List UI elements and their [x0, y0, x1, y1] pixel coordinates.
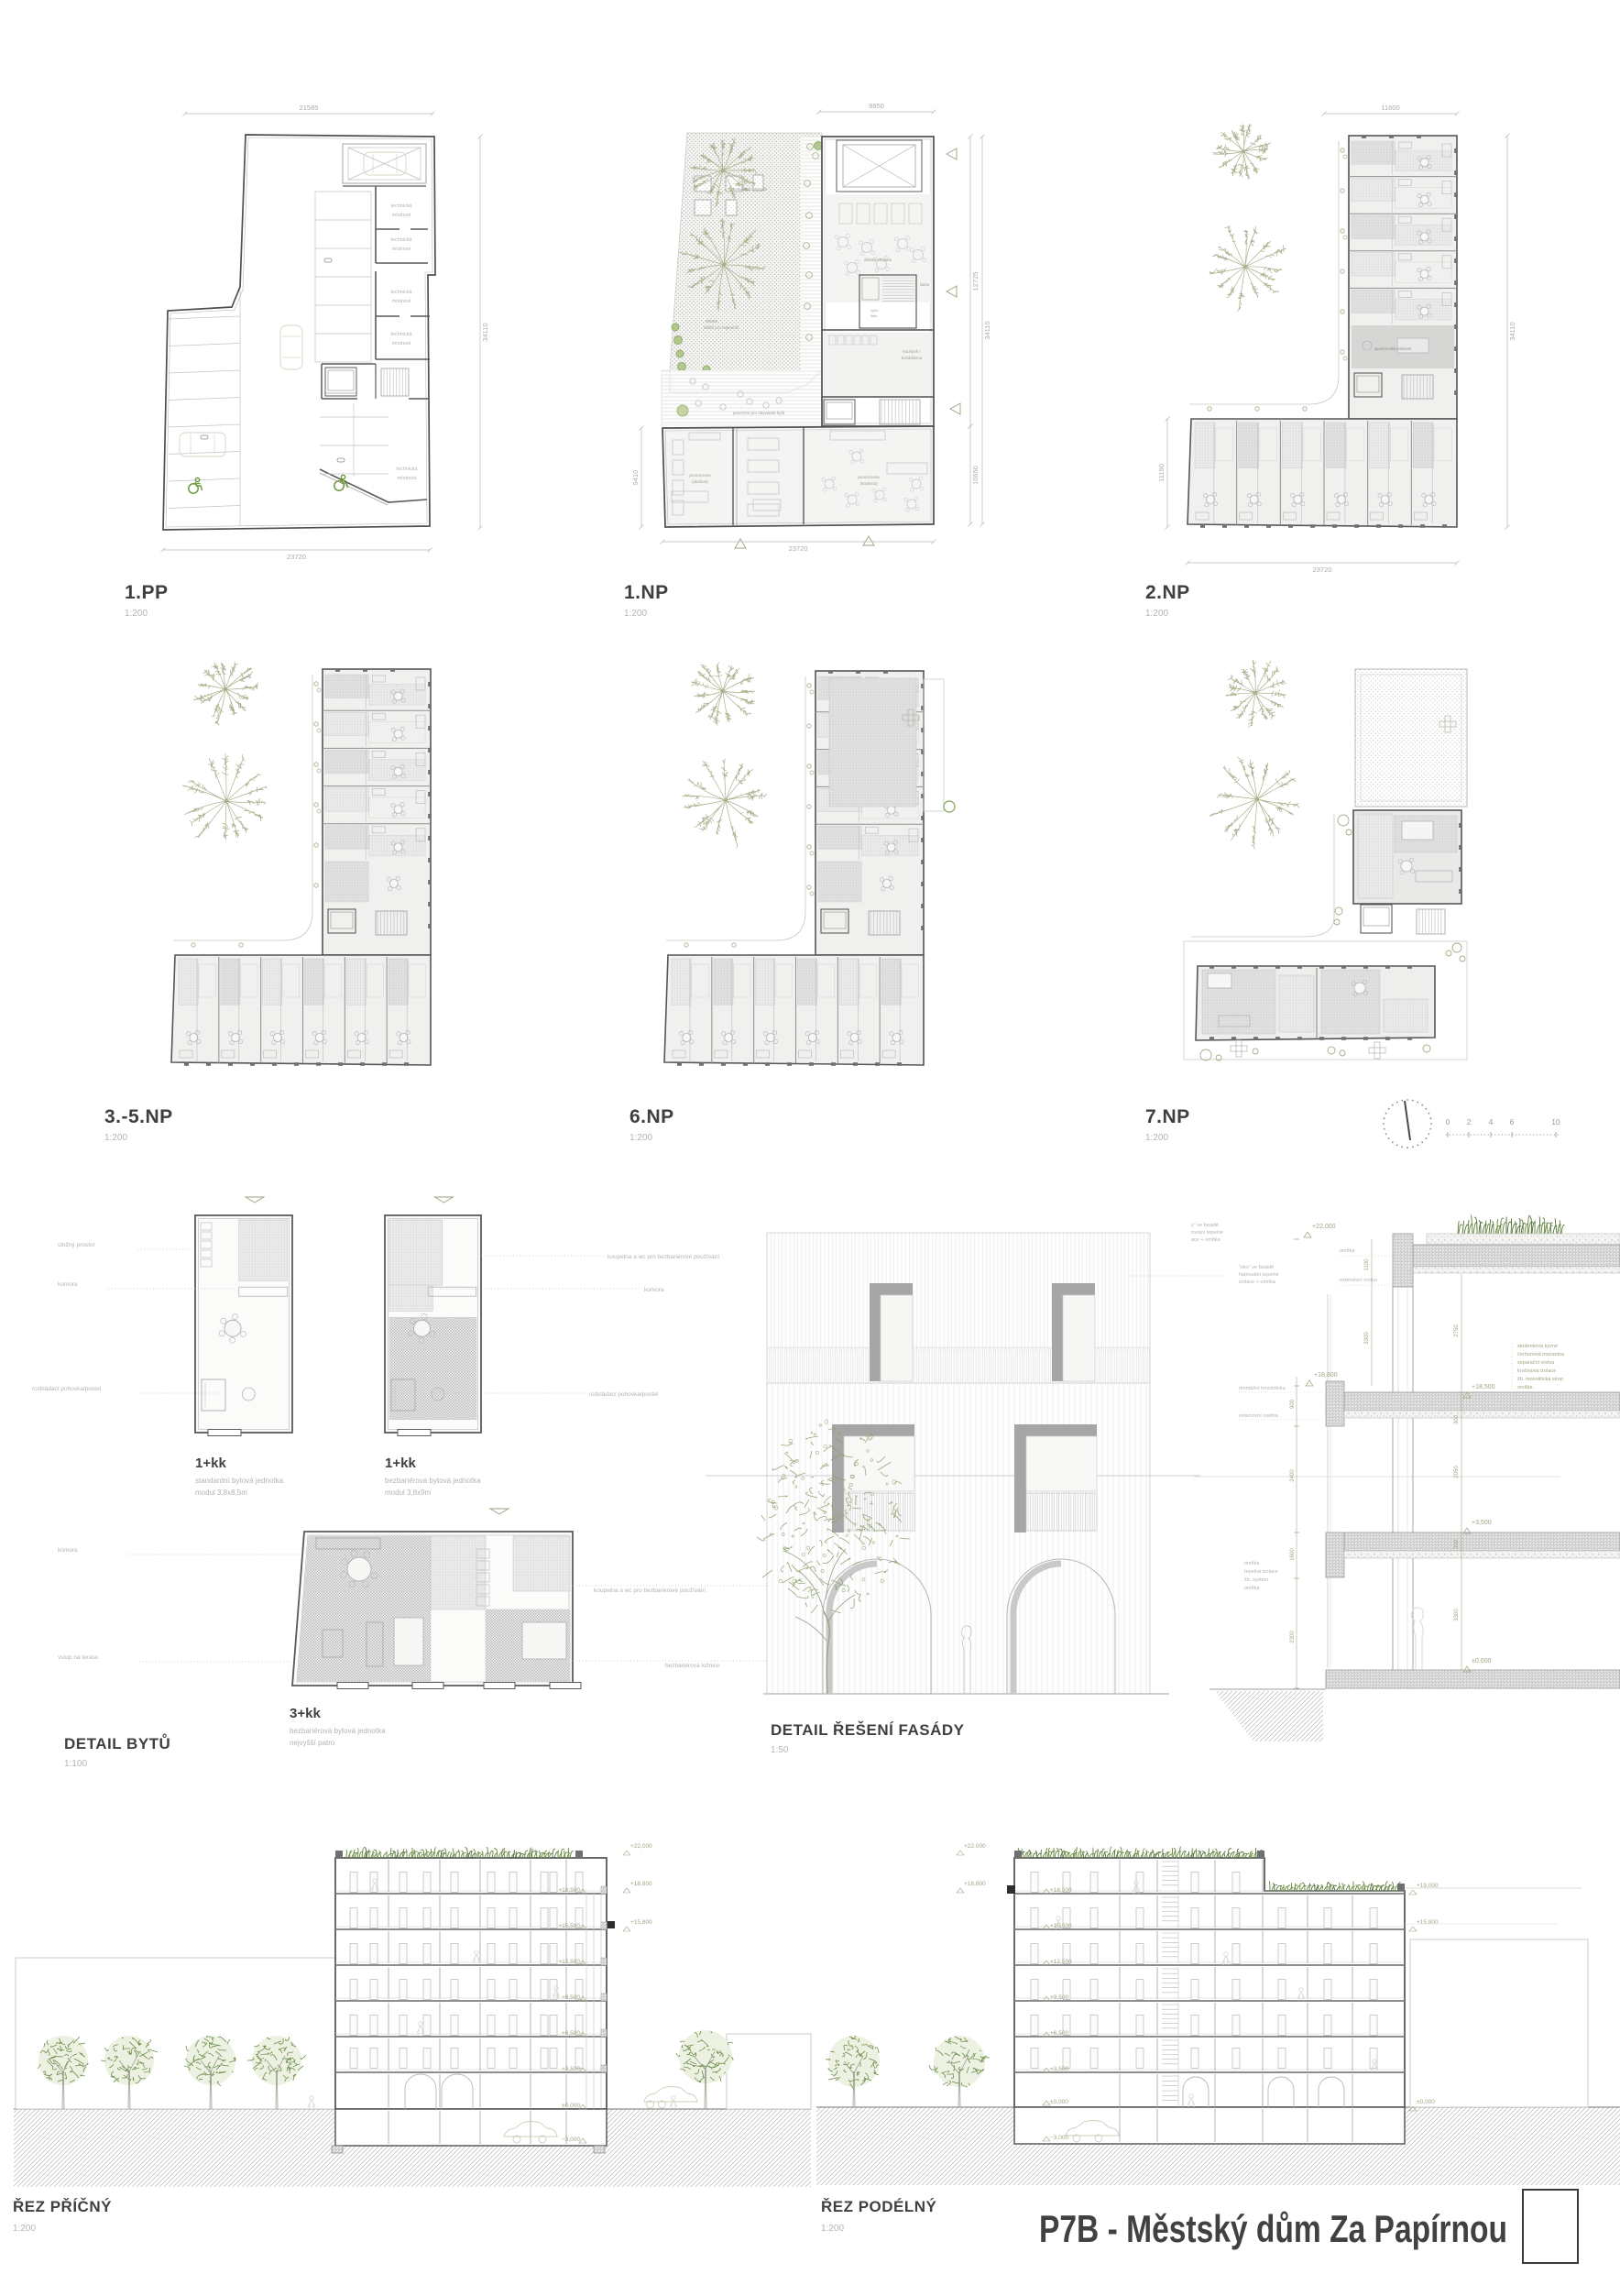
svg-text:+18,800: +18,800 [630, 1881, 652, 1887]
svg-text:23720: 23720 [1313, 566, 1332, 574]
svg-text:34110: 34110 [983, 321, 991, 339]
svg-text:(kavárna): (kavárna) [859, 481, 878, 486]
svg-text:+6,500: +6,500 [562, 2030, 580, 2037]
svg-text:y" ve fasádě: y" ve fasádě [1191, 1223, 1219, 1228]
svg-text:1+kk: 1+kk [195, 1456, 226, 1471]
svg-text:+18,800: +18,800 [1314, 1372, 1338, 1379]
svg-text:bezbariérová ložnice: bezbariérová ložnice [665, 1663, 720, 1669]
svg-text:1:200: 1:200 [125, 609, 148, 619]
svg-text:posezení pro obyvatele bytů: posezení pro obyvatele bytů [733, 410, 785, 415]
svg-text:1100: 1100 [1364, 1258, 1370, 1271]
svg-text:9410: 9410 [631, 470, 640, 486]
svg-text:úložný prostor: úložný prostor [58, 1242, 96, 1248]
svg-text:3300: 3300 [1364, 1332, 1370, 1345]
svg-text:P7B - Městský dům Za Papírnou: P7B - Městský dům Za Papírnou [1039, 2207, 1507, 2250]
svg-text:+15,500: +15,500 [1050, 1923, 1072, 1929]
svg-text:1:200: 1:200 [13, 2224, 36, 2234]
svg-text:ŘEZ PŘÍČNÝ: ŘEZ PŘÍČNÝ [13, 2198, 112, 2215]
svg-text:rozkládací pohovka/postel: rozkládací pohovka/postel [32, 1386, 102, 1392]
svg-text:nejvyšší patro: nejvyšší patro [290, 1739, 335, 1747]
svg-text:koupelna a wc pro bezbariérové: koupelna a wc pro bezbariérové používání [594, 1587, 706, 1594]
svg-text:7.NP: 7.NP [1145, 1106, 1190, 1127]
svg-text:−3,000: −3,000 [562, 2137, 580, 2143]
svg-text:standardní bytová jednotka: standardní bytová jednotka [195, 1477, 284, 1485]
svg-text:izolace + omítka: izolace + omítka [1239, 1280, 1276, 1285]
svg-text:3300: 3300 [1454, 1609, 1460, 1621]
svg-text:±0,000: ±0,000 [562, 2103, 580, 2109]
svg-text:2400: 2400 [1290, 1469, 1296, 1482]
svg-text:−3,000: −3,000 [1050, 2135, 1068, 2141]
svg-text:10650: 10650 [971, 466, 980, 485]
svg-text:34110: 34110 [481, 323, 489, 341]
svg-text:+3,500: +3,500 [1050, 2066, 1068, 2072]
svg-text:bezbariérová bytová jednotka: bezbariérová bytová jednotka [290, 1727, 386, 1735]
svg-text:extenzivní osetba: extenzivní osetba [1239, 1413, 1279, 1419]
svg-text:společenská místnost: společenská místnost [1374, 346, 1412, 351]
svg-text:+9,500: +9,500 [1050, 1994, 1068, 2001]
svg-text:studenková kyvné: studenková kyvné [1517, 1344, 1558, 1349]
svg-text:1:200: 1:200 [624, 609, 647, 619]
svg-text:dětská skupina: dětská skupina [864, 258, 892, 262]
svg-text:+12,500: +12,500 [1050, 1959, 1072, 1965]
svg-text:koupelna a wc pro bezbariérové: koupelna a wc pro bezbariérové používání [607, 1254, 719, 1260]
svg-text:2300: 2300 [1290, 1631, 1296, 1643]
svg-text:modul 3,8x9m: modul 3,8x9m [385, 1489, 432, 1497]
svg-text:místnost: místnost [392, 247, 411, 252]
svg-text:11190: 11190 [1157, 464, 1166, 482]
svg-text:vyřid: vyřid [870, 308, 878, 313]
svg-text:DETAIL ŘEŠENÍ FASÁDY: DETAIL ŘEŠENÍ FASÁDY [771, 1721, 965, 1739]
svg-text:místnost: místnost [398, 476, 417, 481]
svg-text:separační vrstva: separační vrstva [1517, 1360, 1555, 1366]
svg-text:kročejová izolace: kročejová izolace [1517, 1368, 1556, 1374]
svg-text:čerňonová mazanina: čerňonová mazanina [1517, 1352, 1565, 1357]
svg-text:dětské: dětské [706, 319, 718, 324]
svg-text:+18,800: +18,800 [964, 1881, 986, 1887]
svg-text:3+kk: 3+kk [290, 1706, 321, 1721]
svg-text:omítka: omítka [1244, 1586, 1260, 1591]
svg-text:1:50: 1:50 [771, 1745, 789, 1755]
svg-text:+22,000: +22,000 [964, 1843, 986, 1850]
svg-text:6: 6 [1510, 1117, 1515, 1126]
svg-text:+18,500: +18,500 [558, 1887, 580, 1894]
svg-text:2: 2 [1467, 1117, 1472, 1126]
svg-text:12725: 12725 [971, 272, 980, 291]
svg-text:ace + omítka: ace + omítka [1191, 1237, 1221, 1243]
svg-text:11600: 11600 [1381, 104, 1399, 112]
svg-text:+18,500: +18,500 [1472, 1384, 1495, 1390]
svg-text:omítka: omítka [1340, 1248, 1355, 1254]
svg-text:±0,000: ±0,000 [1050, 2099, 1068, 2105]
svg-text:technická: technická [390, 203, 412, 209]
svg-text:1:200: 1:200 [104, 1133, 127, 1143]
svg-text:komora: komora [58, 1281, 78, 1288]
svg-text:1+kk: 1+kk [385, 1456, 416, 1471]
svg-text:hřiště pro nejmenší: hřiště pro nejmenší [704, 325, 739, 330]
svg-text:1:200: 1:200 [629, 1133, 652, 1143]
svg-text:10: 10 [1551, 1117, 1560, 1126]
svg-text:hatnování tepelné: hatnování tepelné [1239, 1272, 1279, 1278]
svg-text:+9,500: +9,500 [562, 1994, 580, 2001]
svg-text:provozovna: provozovna [689, 473, 711, 478]
svg-text:technická: technická [396, 467, 418, 472]
svg-text:extenzivní vrstva: extenzivní vrstva [1340, 1278, 1378, 1283]
svg-text:rování tepelné: rování tepelné [1191, 1230, 1223, 1236]
svg-text:ŘEZ PODÉLNÝ: ŘEZ PODÉLNÝ [821, 2198, 937, 2215]
svg-text:místnost: místnost [392, 341, 411, 346]
svg-text:34110: 34110 [1508, 322, 1516, 340]
svg-text:23720: 23720 [789, 544, 808, 553]
svg-text:bezbariérová bytová jednotka: bezbariérová bytová jednotka [385, 1477, 481, 1485]
svg-text:0: 0 [1446, 1117, 1450, 1126]
svg-text:(obchod): (obchod) [692, 479, 708, 484]
svg-text:rozkládací pohovka/postel: rozkládací pohovka/postel [589, 1391, 659, 1398]
svg-text:1:100: 1:100 [64, 1759, 87, 1769]
svg-text:±0,000: ±0,000 [1417, 2099, 1435, 2105]
svg-text:technická: technická [390, 290, 412, 295]
svg-text:23720: 23720 [287, 553, 306, 561]
svg-text:1:200: 1:200 [1145, 1133, 1168, 1143]
svg-text:+15,800: +15,800 [630, 1919, 652, 1926]
svg-text:tepelná izolace: tepelná izolace [1244, 1569, 1278, 1575]
svg-text:4: 4 [1489, 1117, 1494, 1126]
svg-text:+15,800: +15,800 [1417, 1919, 1439, 1926]
svg-text:+18,500: +18,500 [1050, 1887, 1072, 1894]
svg-text:21585: 21585 [300, 104, 319, 112]
svg-text:omítka: omítka [1244, 1561, 1260, 1566]
svg-text:+3,500: +3,500 [562, 2066, 580, 2072]
svg-text:±0,000: ±0,000 [1472, 1658, 1491, 1664]
svg-text:300: 300 [1454, 1414, 1460, 1424]
svg-text:technická: technická [390, 237, 412, 243]
svg-text:+22,000: +22,000 [630, 1843, 652, 1850]
svg-text:300: 300 [1454, 1539, 1460, 1549]
svg-text:místnost: místnost [392, 213, 411, 218]
svg-text:komunitní zahrada: komunitní zahrada [733, 187, 768, 192]
svg-text:DETAIL BYTŮ: DETAIL BYTŮ [64, 1734, 170, 1752]
svg-text:+6,500: +6,500 [1050, 2030, 1068, 2037]
svg-text:místnost: místnost [392, 299, 411, 304]
svg-text:provozovna: provozovna [858, 475, 880, 479]
svg-text:3.-5.NP: 3.-5.NP [104, 1106, 173, 1127]
svg-text:+22,000: +22,000 [1312, 1224, 1336, 1230]
svg-text:kuchyně /: kuchyně / [903, 349, 921, 354]
svg-text:2.NP: 2.NP [1145, 582, 1190, 603]
svg-text:žb. systém: žb. systém [1244, 1577, 1269, 1583]
svg-text:900: 900 [1290, 1399, 1296, 1409]
svg-text:šatna: šatna [920, 282, 930, 287]
svg-text:2050: 2050 [1454, 1466, 1460, 1478]
svg-text:1.NP: 1.NP [624, 582, 669, 603]
svg-text:montážní hmoždinka: montážní hmoždinka [1239, 1386, 1286, 1391]
svg-text:2750: 2750 [1454, 1324, 1460, 1337]
svg-text:vstup na terasu: vstup na terasu [58, 1654, 99, 1661]
svg-text:1600: 1600 [1290, 1548, 1296, 1561]
svg-text:kočárkárna: kočárkárna [902, 356, 923, 360]
svg-text:1.PP: 1.PP [125, 582, 169, 603]
svg-text:"oko" ve fasádě: "oko" ve fasádě [1239, 1265, 1274, 1270]
svg-text:6.NP: 6.NP [629, 1106, 674, 1127]
svg-text:modul 3,8x8,5m: modul 3,8x8,5m [195, 1489, 247, 1497]
svg-text:1:200: 1:200 [821, 2224, 844, 2234]
svg-text:+12,500: +12,500 [558, 1959, 580, 1965]
svg-text:9850: 9850 [869, 102, 884, 110]
svg-text:žb. monolitická strop: žb. monolitická strop [1517, 1377, 1563, 1382]
svg-text:+15,500: +15,500 [558, 1923, 580, 1929]
svg-text:technická: technická [390, 332, 412, 337]
svg-text:+3,500: +3,500 [1472, 1520, 1492, 1526]
svg-text:omítka: omítka [1517, 1385, 1533, 1390]
svg-text:1:200: 1:200 [1145, 609, 1168, 619]
svg-text:komora: komora [644, 1287, 664, 1293]
svg-text:komora: komora [58, 1547, 78, 1554]
svg-text:lídlo: lídlo [870, 313, 878, 318]
